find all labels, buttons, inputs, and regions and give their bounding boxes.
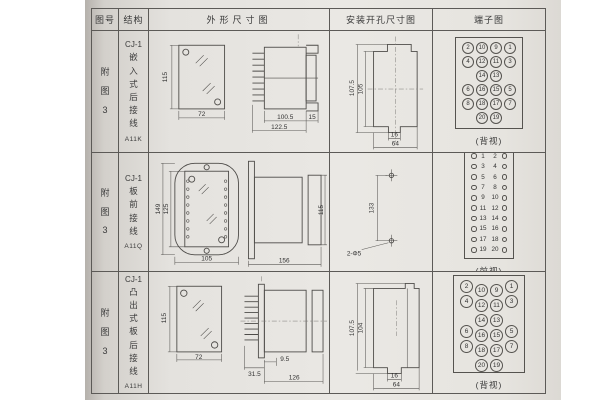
terminal-hole-icon xyxy=(502,153,508,159)
outline-drawing-cell: 149 125 105 156 115 xyxy=(149,153,330,272)
terminal-number: 12 xyxy=(490,205,501,212)
terminal-row: 616155 xyxy=(460,325,518,338)
terminal-hole-icon xyxy=(471,185,477,191)
terminal-number: 9 xyxy=(478,194,489,201)
terminal-hole-icon xyxy=(471,153,477,159)
terminal-circle-19: 19 xyxy=(490,359,503,372)
terminal-row: 1413 xyxy=(460,310,518,323)
terminal-circle-20: 20 xyxy=(476,112,488,124)
terminal-number: 11 xyxy=(478,205,489,212)
terminal-circle-10: 10 xyxy=(475,284,488,297)
terminal-hole-icon xyxy=(502,185,508,191)
terminal-circle-11: 11 xyxy=(490,299,503,312)
dim-hole-spec: 2-Φ5 xyxy=(347,250,362,257)
view-label: (背视) xyxy=(476,135,503,147)
terminal-number: 8 xyxy=(490,184,501,191)
terminal-circle-1: 1 xyxy=(504,42,516,54)
terminal-number: 14 xyxy=(490,215,501,222)
dim-total-length: 122.5 xyxy=(271,123,288,130)
view-label: (前视) xyxy=(476,265,503,272)
outline-drawing-cell: 115 72 100.5 15 122.5 xyxy=(149,31,330,153)
terminal-row: 21091 xyxy=(460,280,518,293)
terminal-circle-18: 18 xyxy=(475,344,488,357)
mounting-drawing-a11k: 107.5 105 16 64 xyxy=(330,31,432,153)
terminal-number: 6 xyxy=(490,174,501,181)
terminal-number: 2 xyxy=(490,153,501,160)
terminal-number: 19 xyxy=(478,246,489,253)
terminal-number: 16 xyxy=(490,225,501,232)
terminal-row: 1112 xyxy=(471,204,507,212)
terminal-number: 13 xyxy=(478,215,489,222)
terminal-row: 34 xyxy=(471,162,507,170)
terminal-row: 21091 xyxy=(462,42,516,54)
terminal-row: 412113 xyxy=(462,56,516,68)
terminal-diagram: 2109141211314136161558181772019 xyxy=(455,37,523,129)
dim-front-height: 115 xyxy=(162,71,169,82)
terminal-circle-6: 6 xyxy=(462,84,474,96)
terminal-row: 56 xyxy=(471,173,507,181)
structure-cell: CJ-1 嵌入式后接线 A11K xyxy=(119,31,149,153)
outline-drawing-cell: 115 72 31.5 9.5 126 xyxy=(149,272,330,393)
terminal-circle-4: 4 xyxy=(460,295,473,308)
dim-front-height: 149 xyxy=(155,203,162,214)
terminal-row: 1413 xyxy=(462,70,516,82)
terminal-circle-16: 16 xyxy=(476,84,488,96)
fig-number: 附图3 xyxy=(100,63,111,120)
terminal-circle-2: 2 xyxy=(460,280,473,293)
terminal-hole-icon xyxy=(471,226,477,232)
terminal-circle-17: 17 xyxy=(490,98,502,110)
terminal-number: 10 xyxy=(490,194,501,201)
dim-front-height: 115 xyxy=(161,312,168,323)
document-photo-paper: 图号 结构 外形尺寸图 安装开孔尺寸图 端子图 附图3 CJ-1 嵌入式后接线 … xyxy=(85,0,561,400)
model-code: A11Q xyxy=(124,243,142,250)
terminal-hole-icon xyxy=(502,216,508,222)
model-code: A11H xyxy=(125,383,143,390)
model-name: CJ-1 xyxy=(125,275,142,284)
terminal-circle-5: 5 xyxy=(504,84,516,96)
fig-number-cell: 附图3 xyxy=(92,153,119,272)
terminal-circle-13: 13 xyxy=(490,70,502,82)
terminal-number: 18 xyxy=(490,236,501,243)
terminal-row: 818177 xyxy=(462,98,516,110)
terminal-number: 17 xyxy=(478,236,489,243)
dim-side-height: 115 xyxy=(318,204,325,215)
terminal-circle-15: 15 xyxy=(490,84,502,96)
fig-number-cell: 附图3 xyxy=(92,272,119,393)
terminal-row: 2019 xyxy=(462,112,516,124)
terminal-circle-17: 17 xyxy=(490,344,503,357)
dim-step: 9.5 xyxy=(280,355,289,362)
terminal-circle-2: 2 xyxy=(462,42,474,54)
terminal-circle-6: 6 xyxy=(460,325,473,338)
terminal-number: 5 xyxy=(478,174,489,181)
model-name: CJ-1 xyxy=(125,40,142,49)
terminal-row: 818177 xyxy=(460,340,518,353)
dim-inner-height: 104 xyxy=(358,322,365,333)
terminal-diagram-cell: 1234567891011121314151617181920 (前视) xyxy=(433,153,545,272)
dim-body-length: 126 xyxy=(289,374,300,381)
terminal-circle-15: 15 xyxy=(490,329,503,342)
terminal-row: 616155 xyxy=(462,84,516,96)
terminal-circle-14: 14 xyxy=(475,314,488,327)
dim-inner-height: 125 xyxy=(163,203,170,214)
dim-slot-width: 16 xyxy=(391,372,399,379)
terminal-hole-icon xyxy=(502,174,508,180)
terminal-row: 1718 xyxy=(471,235,507,243)
terminal-circle-10: 10 xyxy=(476,42,488,54)
terminal-diagram: 2109141211314136161558181772019 xyxy=(453,275,525,373)
header-outline-dims: 外形尺寸图 xyxy=(149,9,330,31)
model-code: A11K xyxy=(125,136,142,143)
terminal-number: 1 xyxy=(478,153,489,160)
terminal-circle-5: 5 xyxy=(505,325,518,338)
header-mounting-dims: 安装开孔尺寸图 xyxy=(330,9,433,31)
terminal-circle-14: 14 xyxy=(476,70,488,82)
terminal-number: 4 xyxy=(490,163,501,170)
terminal-hole-icon xyxy=(471,195,477,201)
dim-slot-width: 16 xyxy=(391,131,399,138)
header-terminal-diagram: 端子图 xyxy=(433,9,545,31)
terminal-circle-12: 12 xyxy=(475,299,488,312)
terminal-number: 15 xyxy=(478,225,489,232)
dim-cutout-width: 64 xyxy=(392,140,400,147)
terminal-row: 1314 xyxy=(471,214,507,222)
terminal-circle-7: 7 xyxy=(504,98,516,110)
terminal-hole-icon xyxy=(471,247,477,253)
terminal-row: 78 xyxy=(471,183,507,191)
terminal-number: 20 xyxy=(490,246,501,253)
terminal-number: 3 xyxy=(478,163,489,170)
header-structure: 结构 xyxy=(119,9,149,31)
dim-cutout-width: 64 xyxy=(393,381,401,388)
terminal-circle-20: 20 xyxy=(475,359,488,372)
terminal-circle-4: 4 xyxy=(462,56,474,68)
terminal-circle-19: 19 xyxy=(490,112,502,124)
model-name: CJ-1 xyxy=(125,174,142,183)
fig-number: 附图3 xyxy=(100,184,111,241)
dim-side-length: 156 xyxy=(279,257,290,264)
spec-table: 图号 结构 外形尺寸图 安装开孔尺寸图 端子图 附图3 CJ-1 嵌入式后接线 … xyxy=(91,8,546,394)
structure-desc: 板前接线 xyxy=(128,185,140,238)
terminal-circle-12: 12 xyxy=(476,56,488,68)
fig-number-cell: 附图3 xyxy=(92,31,119,153)
terminal-hole-icon xyxy=(502,226,508,232)
terminal-circle-9: 9 xyxy=(490,42,502,54)
terminal-hole-icon xyxy=(471,237,477,243)
mounting-drawing-cell: 133 2-Φ5 xyxy=(330,153,433,272)
terminal-hole-icon xyxy=(502,237,508,243)
structure-cell: CJ-1 板前接线 A11Q xyxy=(119,153,149,272)
terminal-circle-3: 3 xyxy=(505,295,518,308)
terminal-circle-13: 13 xyxy=(490,314,503,327)
dim-inner-height: 105 xyxy=(358,83,365,94)
mounting-drawing-a11h: 107.5 104 16 64 xyxy=(330,272,432,393)
structure-cell: CJ-1 凸出式板后接线 A11H xyxy=(119,272,149,393)
mounting-drawing-a11q: 133 2-Φ5 xyxy=(330,153,432,272)
terminal-circle-3: 3 xyxy=(504,56,516,68)
outline-drawing-a11k: 115 72 100.5 15 122.5 xyxy=(149,31,329,153)
terminal-circle-9: 9 xyxy=(490,284,503,297)
terminal-hole-icon xyxy=(502,195,508,201)
terminal-hole-icon xyxy=(471,205,477,211)
terminal-circle-7: 7 xyxy=(505,340,518,353)
dim-flange: 15 xyxy=(309,113,317,120)
terminal-circle-8: 8 xyxy=(462,98,474,110)
outline-drawing-a11h: 115 72 31.5 9.5 126 xyxy=(149,272,329,393)
dim-pin-length: 31.5 xyxy=(248,370,261,377)
dim-body-length: 100.5 xyxy=(277,113,294,120)
terminal-hole-icon xyxy=(502,164,508,170)
terminal-circle-16: 16 xyxy=(475,329,488,342)
terminal-diagram-cell: 2109141211314136161558181772019 (背视) xyxy=(433,31,545,153)
dim-front-width: 72 xyxy=(195,353,203,360)
terminal-number: 7 xyxy=(478,184,489,191)
terminal-hole-icon xyxy=(502,205,508,211)
terminal-hole-icon xyxy=(471,164,477,170)
dim-outer-height: 107.5 xyxy=(349,319,356,335)
dim-front-width: 72 xyxy=(198,110,206,117)
terminal-row: 2019 xyxy=(460,355,518,368)
outline-drawing-a11q: 149 125 105 156 115 xyxy=(149,153,329,272)
terminal-row: 1516 xyxy=(471,225,507,233)
terminal-circle-8: 8 xyxy=(460,340,473,353)
terminal-row: 910 xyxy=(471,194,507,202)
dim-hole-distance: 133 xyxy=(369,202,376,213)
terminal-circle-18: 18 xyxy=(476,98,488,110)
dim-front-width: 105 xyxy=(201,255,212,262)
view-label: (背视) xyxy=(476,379,503,391)
terminal-hole-icon xyxy=(502,247,508,253)
terminal-row: 12 xyxy=(471,153,507,160)
mounting-drawing-cell: 107.5 105 16 64 xyxy=(330,31,433,153)
terminal-row: 1920 xyxy=(471,246,507,254)
terminal-hole-icon xyxy=(471,216,477,222)
terminal-hole-icon xyxy=(471,174,477,180)
terminal-circle-11: 11 xyxy=(490,56,502,68)
header-fig-no: 图号 xyxy=(92,9,119,31)
structure-desc: 凸出式板后接线 xyxy=(128,286,140,378)
mounting-drawing-cell: 107.5 104 16 64 xyxy=(330,272,433,393)
structure-desc: 嵌入式后接线 xyxy=(128,51,140,130)
terminal-diagram: 1234567891011121314151617181920 xyxy=(464,153,514,259)
terminal-circle-1: 1 xyxy=(505,280,518,293)
terminal-row: 412113 xyxy=(460,295,518,308)
dim-outer-height: 107.5 xyxy=(349,79,356,95)
terminal-diagram-cell: 2109141211314136161558181772019 (背视) xyxy=(433,272,545,393)
fig-number: 附图3 xyxy=(100,304,111,361)
